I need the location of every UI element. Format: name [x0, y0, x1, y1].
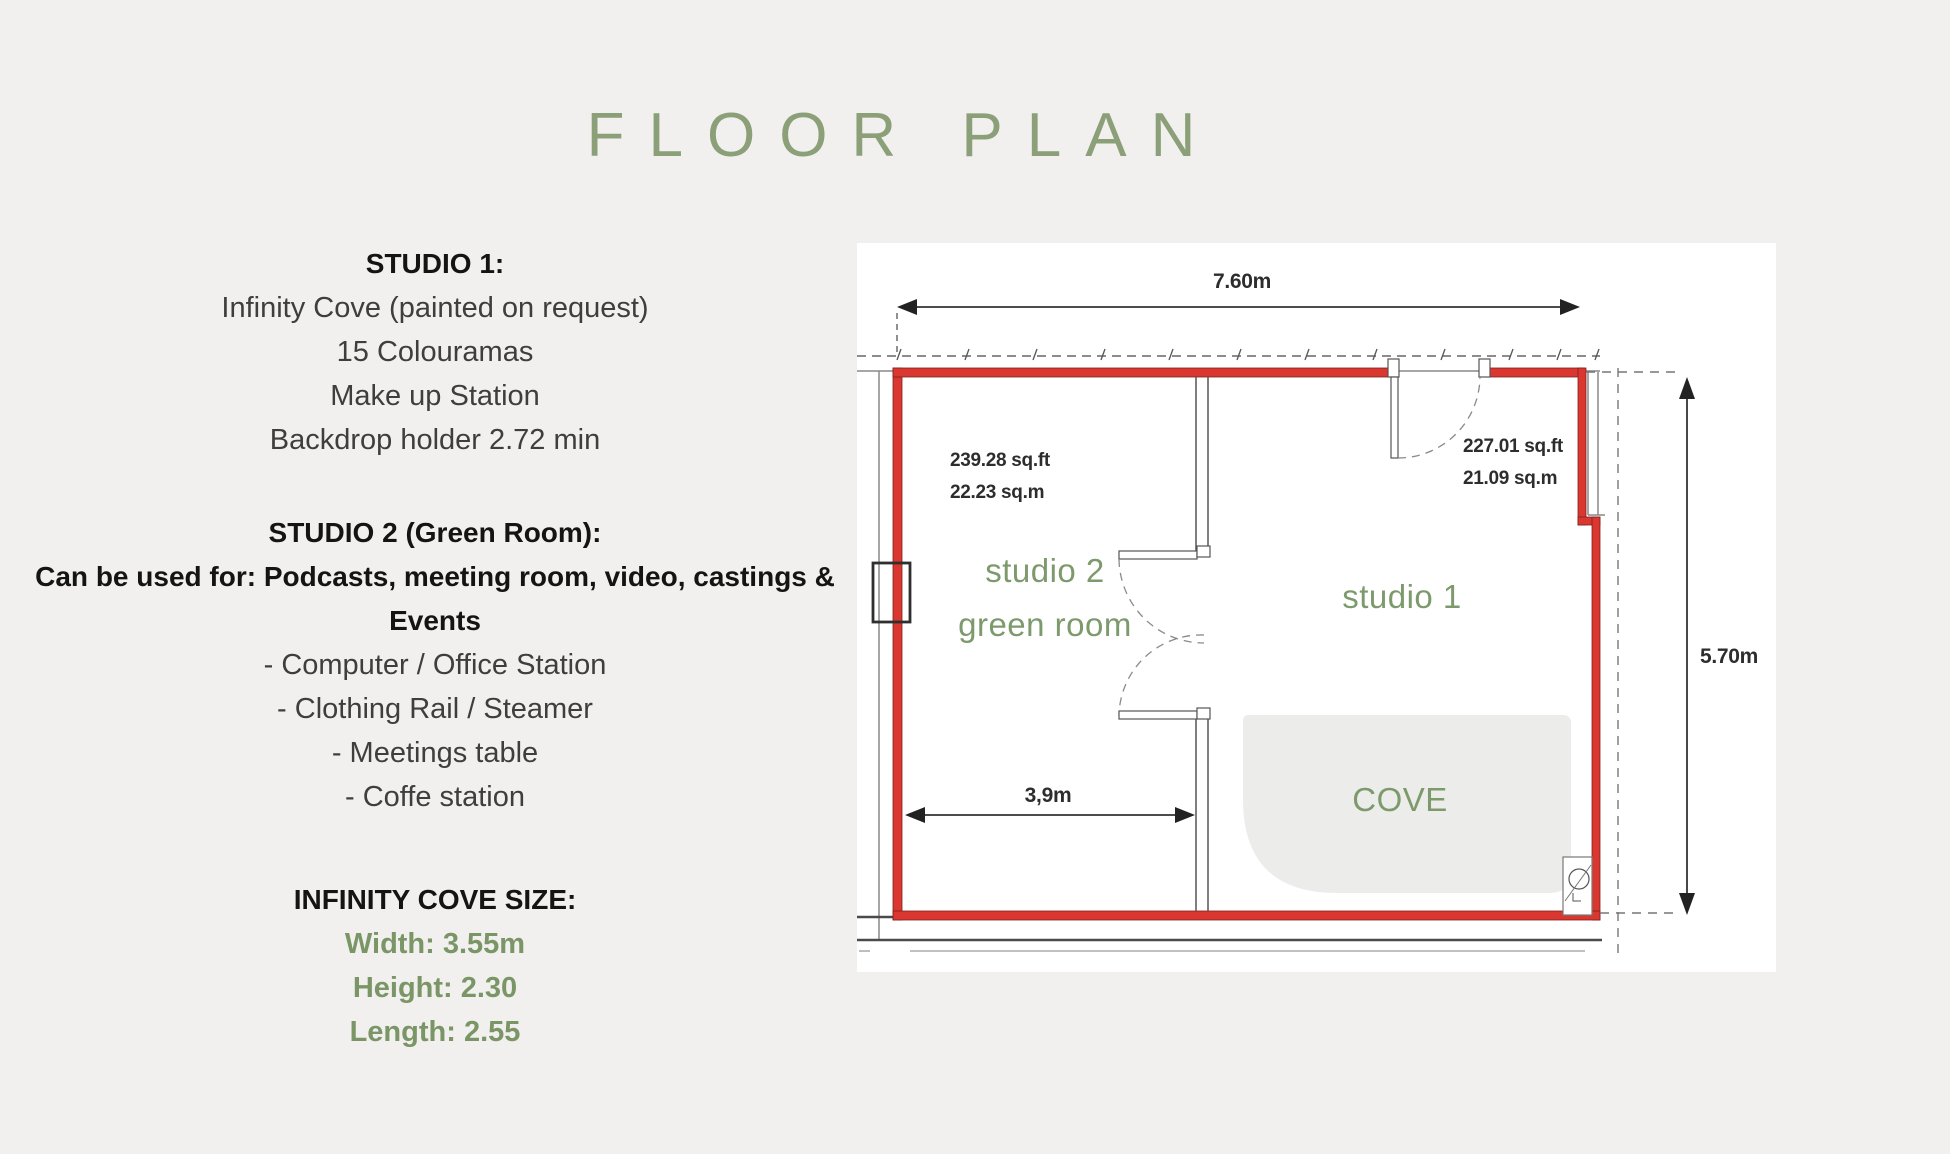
wall-segment: [893, 911, 1600, 920]
hatch-ticks: [897, 349, 1599, 360]
cove-label: COVE: [1352, 781, 1448, 818]
arrow-right-icon: [1560, 299, 1580, 315]
page-title: FLOOR PLAN: [0, 100, 1806, 171]
info-panel: STUDIO 1: Infinity Cove (painted on requ…: [70, 242, 800, 1054]
studio1-area-sqft: 227.01 sq.ft: [1463, 436, 1564, 457]
cove-metric: Length: 2.55: [70, 1010, 800, 1054]
info-line: - Meetings table: [70, 731, 800, 775]
door-jamb: [1479, 359, 1490, 377]
studio2-usage-line: Events: [70, 599, 800, 643]
door-leaf: [1391, 377, 1398, 458]
cove-size-heading: INFINITY COVE SIZE:: [70, 878, 800, 922]
studio2-usage-line: Can be used for: Podcasts, meeting room,…: [70, 555, 800, 599]
right-dimension: 5.70m: [1679, 377, 1758, 915]
wall-segment: [1578, 368, 1586, 525]
double-door: [1119, 546, 1210, 719]
floor-plan-page: FLOOR PLAN STUDIO 1: Infinity Cove (pain…: [0, 0, 1950, 1154]
top-dimension: 7.60m: [897, 270, 1580, 353]
green-room-label: green room: [958, 606, 1132, 643]
studio1-heading: STUDIO 1:: [70, 242, 800, 286]
arrow-left-icon: [897, 299, 917, 315]
wall-segment: [893, 368, 902, 920]
door-swing-arc: [1119, 635, 1204, 715]
studio2-area-sqft: 239.28 sq.ft: [950, 450, 1051, 471]
door-jamb: [1388, 359, 1399, 377]
plan-dim-right-label: 5.70m: [1700, 645, 1758, 668]
arrow-right-icon: [1175, 807, 1195, 823]
studio2-heading: STUDIO 2 (Green Room):: [70, 511, 800, 555]
door-hinge: [1197, 708, 1210, 719]
info-line: - Computer / Office Station: [70, 643, 800, 687]
plan-dim-top-label: 7.60m: [1213, 270, 1271, 293]
info-line: - Coffe station: [70, 775, 800, 819]
wall-segment: [1592, 517, 1600, 920]
door-leaf: [1119, 711, 1197, 719]
arrow-left-icon: [905, 807, 925, 823]
info-line: Infinity Cove (painted on request): [70, 286, 800, 330]
plan-dim-inner-label: 3,9m: [1025, 784, 1072, 807]
cove-metric: Width: 3.55m: [70, 922, 800, 966]
floor-plan-canvas: 7.60m: [857, 243, 1776, 972]
cove-metric: Height: 2.30: [70, 966, 800, 1010]
info-line: Make up Station: [70, 374, 800, 418]
inner-dimension: 3,9m: [905, 784, 1195, 823]
info-line: - Clothing Rail / Steamer: [70, 687, 800, 731]
studio2-label: studio 2: [985, 552, 1105, 589]
partition-wall: [1196, 377, 1208, 911]
arrow-down-icon: [1679, 893, 1695, 915]
corner-fixture: [1563, 857, 1592, 915]
wall-segment: [1490, 368, 1584, 377]
wall-segment: [893, 368, 1397, 377]
arrow-up-icon: [1679, 377, 1695, 399]
studio2-area-sqm: 22.23 sq.m: [950, 482, 1044, 503]
door-hinge: [1197, 546, 1210, 557]
studio1-label: studio 1: [1342, 578, 1462, 615]
door-leaf: [1119, 551, 1197, 559]
info-line: Backdrop holder 2.72 min: [70, 418, 800, 462]
info-line: 15 Colouramas: [70, 330, 800, 374]
studio1-area-sqm: 21.09 sq.m: [1463, 468, 1557, 489]
